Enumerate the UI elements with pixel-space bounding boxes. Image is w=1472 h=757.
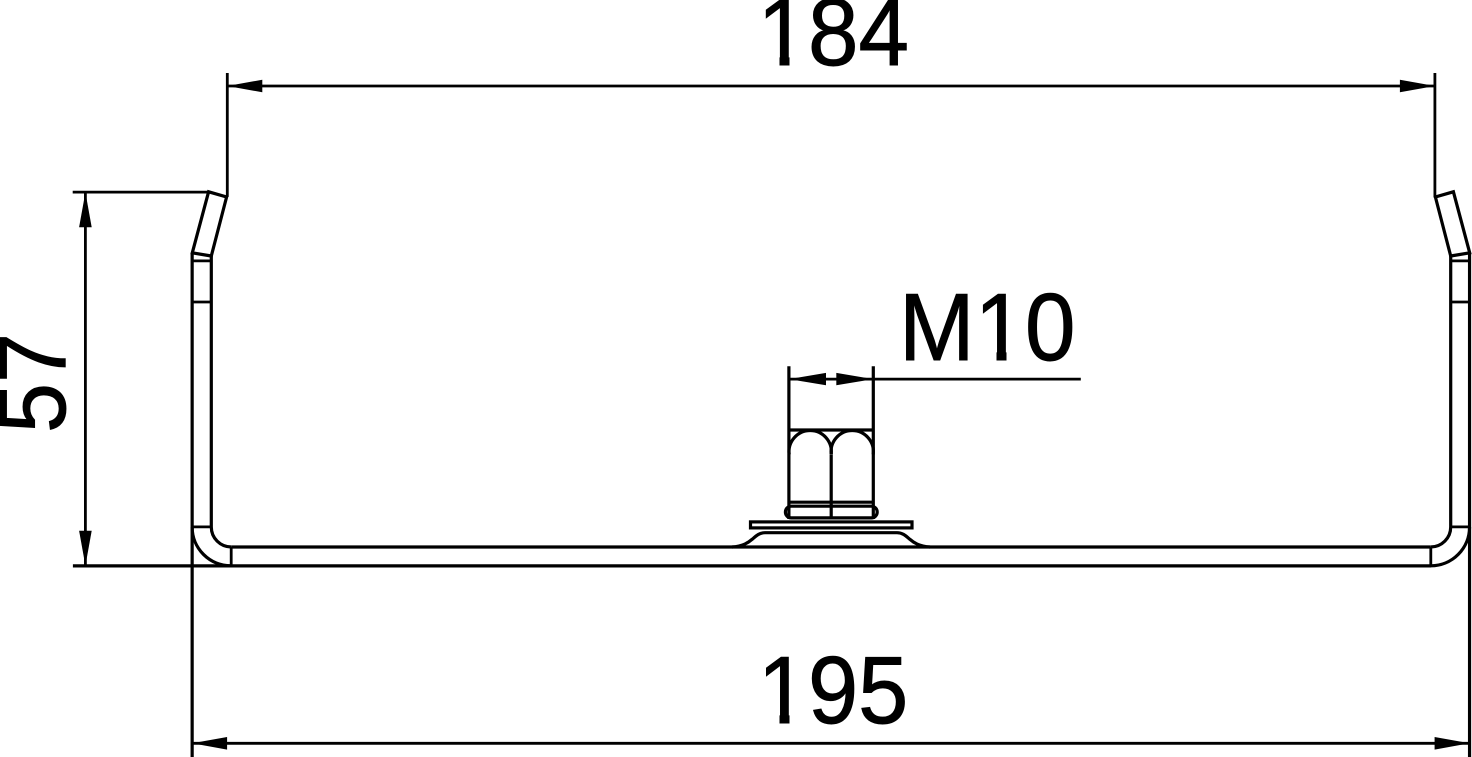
svg-text:184: 184 [758,0,910,86]
svg-text:M10: M10 [899,274,1076,381]
svg-text:195: 195 [758,637,909,744]
svg-text:57: 57 [0,333,86,433]
